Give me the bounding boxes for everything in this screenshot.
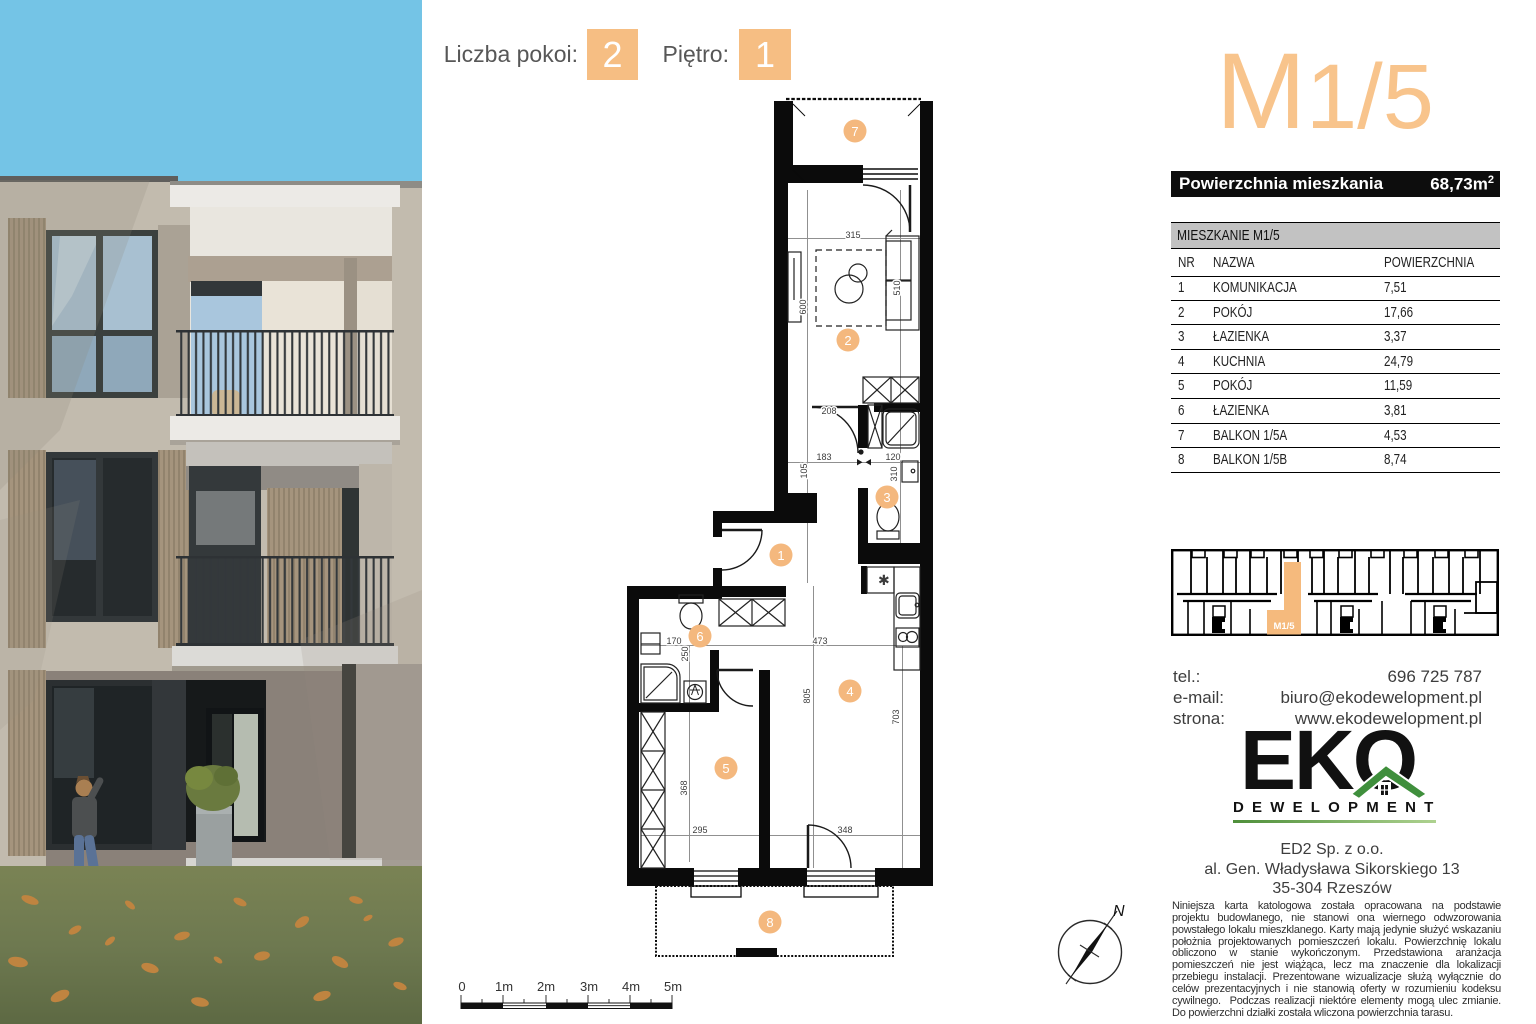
svg-text:3m: 3m — [580, 979, 598, 994]
svg-text:2m: 2m — [537, 979, 555, 994]
svg-text:5: 5 — [722, 761, 729, 776]
svg-text:3: 3 — [883, 490, 890, 505]
svg-text:315: 315 — [845, 230, 860, 240]
svg-text:170: 170 — [666, 636, 681, 646]
svg-text:510: 510 — [892, 280, 902, 295]
svg-text:7: 7 — [851, 124, 858, 139]
svg-text:208: 208 — [821, 406, 836, 416]
svg-text:6: 6 — [696, 629, 703, 644]
svg-text:✱: ✱ — [878, 572, 890, 588]
svg-text:8: 8 — [766, 915, 773, 930]
svg-text:1m: 1m — [495, 979, 513, 994]
svg-text:805: 805 — [802, 688, 812, 703]
svg-text:0: 0 — [458, 979, 465, 994]
svg-text:4: 4 — [846, 684, 853, 699]
svg-text:4m: 4m — [622, 979, 640, 994]
svg-text:310: 310 — [889, 466, 899, 481]
svg-text:N: N — [1113, 903, 1125, 920]
svg-text:600: 600 — [798, 299, 808, 314]
svg-text:105: 105 — [799, 463, 809, 478]
svg-text:5m: 5m — [664, 979, 682, 994]
svg-text:295: 295 — [692, 825, 707, 835]
svg-text:120: 120 — [885, 452, 900, 462]
svg-text:2: 2 — [844, 333, 851, 348]
svg-text:368: 368 — [679, 780, 689, 795]
svg-text:250: 250 — [680, 646, 690, 661]
svg-text:183: 183 — [816, 452, 831, 462]
svg-text:M1/5: M1/5 — [1273, 621, 1295, 632]
svg-text:703: 703 — [891, 709, 901, 724]
svg-text:348: 348 — [837, 825, 852, 835]
svg-text:473: 473 — [812, 636, 827, 646]
svg-text:1: 1 — [777, 548, 784, 563]
